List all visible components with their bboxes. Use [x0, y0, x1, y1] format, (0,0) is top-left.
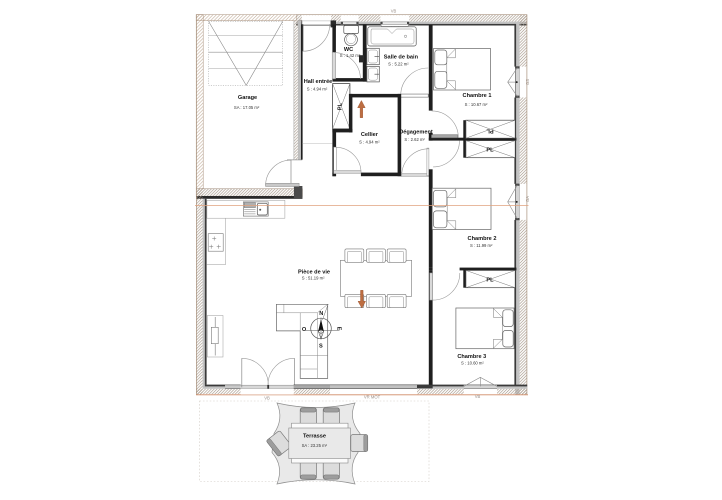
svg-text:S : 11.99 m²: S : 11.99 m²	[470, 243, 493, 248]
svg-text:S : 10.67 m²: S : 10.67 m²	[465, 102, 488, 107]
svg-text:S: S	[319, 344, 323, 350]
svg-text:Chambre 1: Chambre 1	[463, 93, 492, 99]
svg-text:S : 5.22 m²: S : 5.22 m²	[388, 62, 409, 67]
svg-text:Dégagement: Dégagement	[399, 130, 433, 136]
svg-text:E: E	[336, 327, 342, 331]
svg-text:Pièce de vie: Pièce de vie	[298, 269, 330, 275]
svg-text:SA : 17.05 m²: SA : 17.05 m²	[234, 105, 260, 110]
svg-text:VB: VB	[391, 9, 397, 14]
svg-text:S : 10.60 m²: S : 10.60 m²	[461, 361, 484, 366]
svg-text:Hall entrée: Hall entrée	[304, 79, 333, 85]
svg-text:Garage: Garage	[238, 95, 257, 101]
svg-text:GA: GA	[525, 196, 530, 202]
svg-text:SA : 23.25 m²: SA : 23.25 m²	[302, 443, 328, 448]
svg-text:S : 51.19 m²: S : 51.19 m²	[302, 276, 325, 281]
svg-text:VB: VB	[475, 394, 481, 399]
svg-text:S : 4.94 m²: S : 4.94 m²	[359, 140, 380, 145]
svg-text:PL: PL	[486, 277, 494, 283]
svg-text:PL: PL	[338, 102, 344, 110]
svg-text:Chambre 3: Chambre 3	[457, 354, 486, 360]
svg-text:GS: GS	[525, 79, 530, 85]
svg-text:VR MOT: VR MOT	[364, 394, 381, 399]
svg-text:PL: PL	[486, 147, 494, 153]
svg-text:S : 1.42 m²: S : 1.42 m²	[340, 53, 361, 58]
svg-text:Chambre 2: Chambre 2	[468, 236, 497, 242]
svg-text:Terrasse: Terrasse	[303, 434, 326, 440]
svg-text:Salle de bain: Salle de bain	[384, 54, 419, 60]
svg-text:Cellier: Cellier	[361, 132, 379, 138]
svg-text:VB: VB	[264, 395, 270, 400]
svg-text:PL: PL	[486, 128, 494, 134]
svg-text:N: N	[319, 311, 323, 317]
svg-text:O: O	[302, 327, 307, 333]
svg-text:S : 4.94 m²: S : 4.94 m²	[307, 86, 328, 91]
svg-text:S : 2.62 m²: S : 2.62 m²	[404, 137, 425, 142]
